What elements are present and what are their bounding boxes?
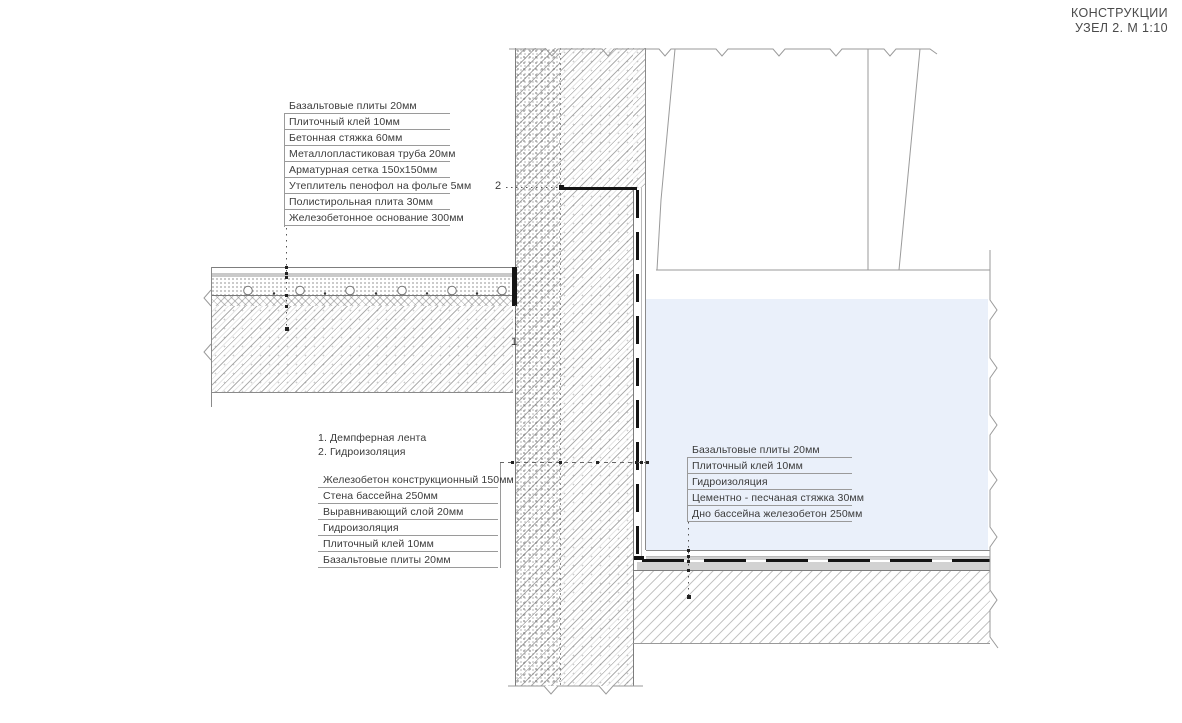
marker-1-label: 1 xyxy=(509,336,519,348)
layer-label: Металлопластиковая труба 20мм xyxy=(289,148,456,160)
right-break-line xyxy=(990,250,998,648)
leader-dot xyxy=(687,569,690,572)
layer-label: Гидроизоляция xyxy=(323,522,399,534)
leader-dot xyxy=(285,272,288,275)
floor-layers-list: Базальтовые плиты 20мм Плиточный клей 10… xyxy=(284,98,450,226)
layer-row: Гидроизоляция xyxy=(318,520,498,536)
marker-1-leader-line xyxy=(515,305,516,335)
floor-list-leader-line xyxy=(286,228,287,330)
pool-coping-line xyxy=(656,250,990,270)
top-break-line xyxy=(509,49,937,56)
layer-label: Плиточный клей 10мм xyxy=(323,538,434,550)
leader-dot xyxy=(640,461,643,464)
layer-row: Полистирольная плита 30мм xyxy=(284,194,450,210)
layer-row: Бетонная стяжка 60мм xyxy=(284,130,450,146)
layer-row: Арматурная сетка 150х150мм xyxy=(284,162,450,178)
title-line-2: УЗЕЛ 2. М 1:10 xyxy=(1071,21,1168,36)
floor-left-break-chevrons xyxy=(204,290,211,360)
layer-label: Базальтовые плиты 20мм xyxy=(323,554,451,566)
marker-2-label: 2 xyxy=(493,180,503,192)
layer-label: Полистирольная плита 30мм xyxy=(289,196,433,208)
layer-row: Плиточный клей 10мм xyxy=(284,114,450,130)
leader-end-dot xyxy=(687,595,691,599)
leader-dot xyxy=(559,461,562,464)
layer-label: Бетонная стяжка 60мм xyxy=(289,132,402,144)
layer-label: Базальтовые плиты 20мм xyxy=(289,100,417,112)
layer-label: Арматурная сетка 150х150мм xyxy=(289,164,437,176)
layer-row: Базальтовые плиты 20мм xyxy=(687,442,852,458)
layer-row: Плиточный клей 10мм xyxy=(687,458,852,474)
layer-label: Гидроизоляция xyxy=(692,476,768,488)
layer-label: Стена бассейна 250мм xyxy=(323,490,438,502)
note-line-2: 2. Гидроизоляция xyxy=(318,445,426,459)
layer-label: Цементно - песчаная стяжка 30мм xyxy=(692,492,864,504)
layer-row: Металлопластиковая труба 20мм xyxy=(284,146,450,162)
layer-row: Утеплитель пенофол на фольге 5мм xyxy=(284,178,450,194)
leader-end-dot xyxy=(285,327,289,331)
marker-2-leader-line xyxy=(506,187,560,188)
layer-label: Дно бассейна железобетон 250мм xyxy=(692,508,862,520)
wall-layers-list: Железобетон конструкционный 150мм Стена … xyxy=(318,472,498,568)
pool-floor-layers-list: Базальтовые плиты 20мм Плиточный клей 10… xyxy=(687,442,852,522)
layer-row: Железобетонное основание 300мм xyxy=(284,210,450,226)
leader-dot xyxy=(596,461,599,464)
layer-row: Базальтовые плиты 20мм xyxy=(318,552,498,568)
above-pool-slant-line-1 xyxy=(657,49,675,270)
leader-dot xyxy=(511,461,514,464)
layer-row: Гидроизоляция xyxy=(687,474,852,490)
layer-label: Утеплитель пенофол на фольге 5мм xyxy=(289,180,471,192)
break-lines-overlay xyxy=(0,0,1182,723)
layer-row: Дно бассейна железобетон 250мм xyxy=(687,506,852,522)
above-pool-slant-line-2 xyxy=(899,49,920,270)
title-line-1: КОНСТРУКЦИИ xyxy=(1071,6,1168,21)
leader-dot xyxy=(285,294,288,297)
leader-dot xyxy=(646,461,649,464)
layer-row: Стена бассейна 250мм xyxy=(318,488,498,504)
layer-row: Железобетон конструкционный 150мм xyxy=(318,472,498,488)
construction-drawing-canvas: 1 2 КОНСТРУКЦИИ УЗЕЛ 2. М 1:10 Базальтов… xyxy=(0,0,1182,723)
layer-label: Выравнивающий слой 20мм xyxy=(323,506,463,518)
layer-row: Плиточный клей 10мм xyxy=(318,536,498,552)
leader-dot xyxy=(285,266,288,269)
title-block: КОНСТРУКЦИИ УЗЕЛ 2. М 1:10 xyxy=(1071,6,1168,36)
leader-dot xyxy=(687,555,690,558)
layer-label: Плиточный клей 10мм xyxy=(692,460,803,472)
layer-label: Железобетонное основание 300мм xyxy=(289,212,464,224)
layer-row: Базальтовые плиты 20мм xyxy=(284,98,450,114)
notes-block: 1. Демпферная лента 2. Гидроизоляция xyxy=(318,431,426,459)
leader-dot xyxy=(285,305,288,308)
leader-dot xyxy=(285,276,288,279)
note-line-1: 1. Демпферная лента xyxy=(318,431,426,445)
layer-label: Железобетон конструкционный 150мм xyxy=(323,474,514,486)
leader-dot xyxy=(687,549,690,552)
layer-row: Цементно - песчаная стяжка 30мм xyxy=(687,490,852,506)
leader-dot xyxy=(635,461,638,464)
layer-label: Плиточный клей 10мм xyxy=(289,116,400,128)
layer-label: Базальтовые плиты 20мм xyxy=(692,444,820,456)
bottom-break-line xyxy=(508,686,643,694)
layer-row: Выравнивающий слой 20мм xyxy=(318,504,498,520)
wall-list-leader-line xyxy=(500,462,651,463)
leader-dot xyxy=(687,560,690,563)
